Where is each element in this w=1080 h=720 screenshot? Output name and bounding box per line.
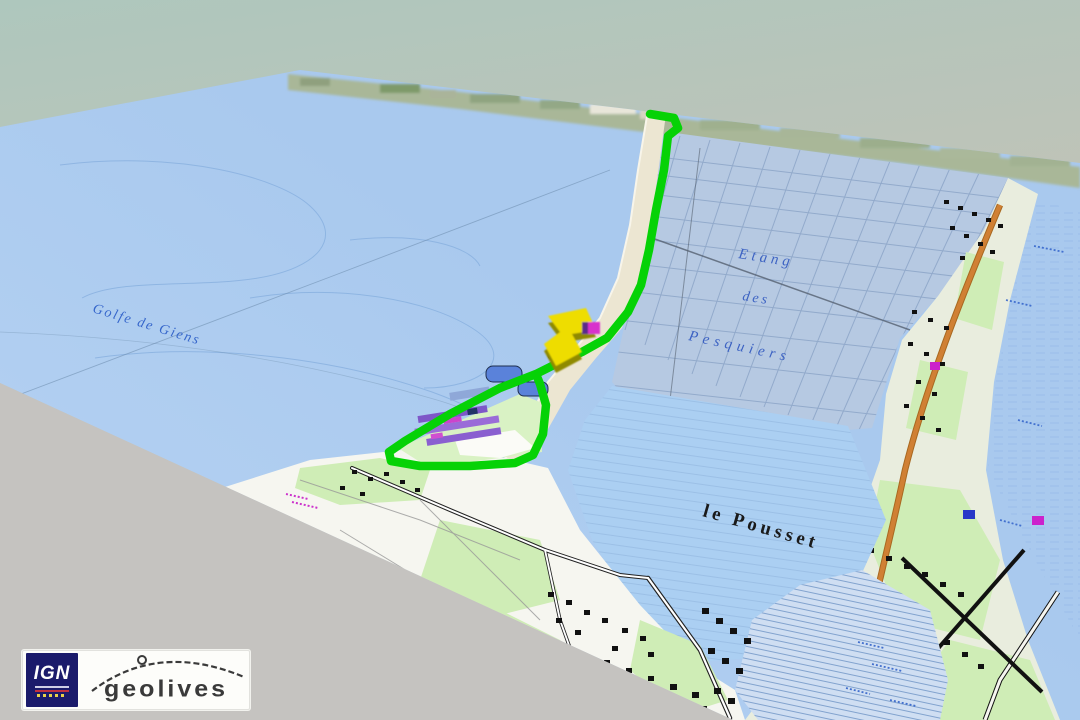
map-3d-viewport[interactable]: Golfe de Giens Etang des Pesquiers le Po…: [0, 0, 1080, 720]
ign-logo-text: IGN: [34, 664, 71, 683]
geolives-logo: geolives: [78, 651, 249, 709]
ign-logo-line: [35, 686, 69, 688]
waypoint-flag-pole: [582, 322, 588, 334]
logo-bar: IGN geolives: [22, 650, 250, 710]
map-3d-scene[interactable]: Golfe de Giens Etang des Pesquiers le Po…: [0, 0, 1080, 720]
ign-logo-redline: [35, 690, 69, 692]
ign-logo-dots: [37, 694, 67, 697]
ign-logo: IGN: [26, 653, 78, 707]
geolives-logo-text: geolives: [104, 676, 228, 703]
